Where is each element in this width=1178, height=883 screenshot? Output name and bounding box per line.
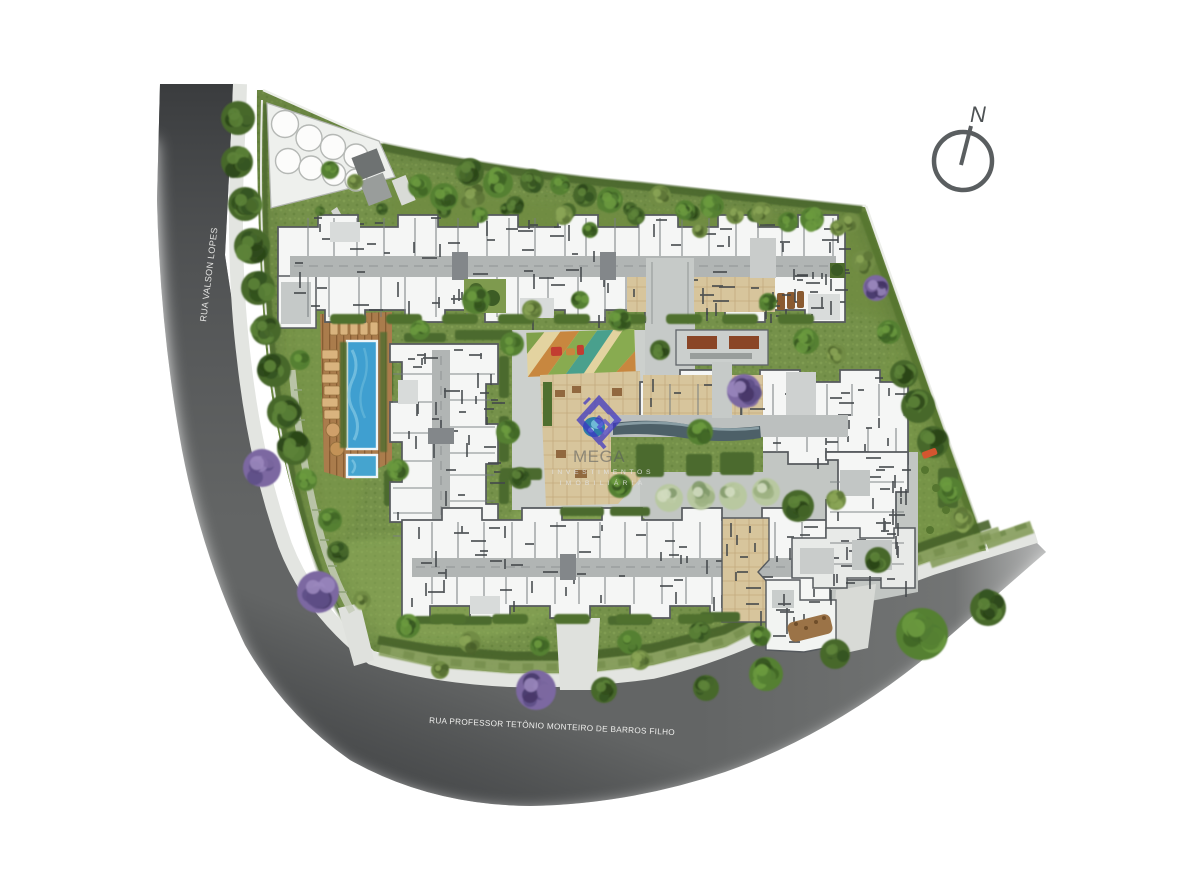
svg-text:INVESTIMENTOS: INVESTIMENTOS (552, 469, 654, 476)
svg-text:IMOBILIÁRIA: IMOBILIÁRIA (560, 478, 647, 487)
svg-text:N: N (970, 102, 986, 127)
svg-text:MEGA: MEGA (573, 447, 625, 466)
